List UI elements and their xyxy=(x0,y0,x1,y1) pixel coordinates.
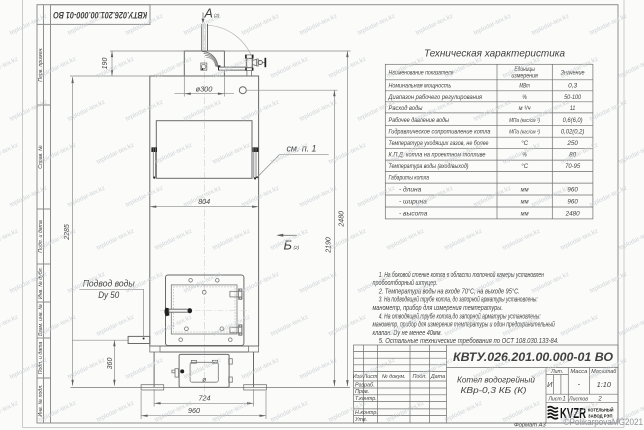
svg-text:©PolikarpovaMG2021: ©PolikarpovaMG2021 xyxy=(564,417,644,428)
